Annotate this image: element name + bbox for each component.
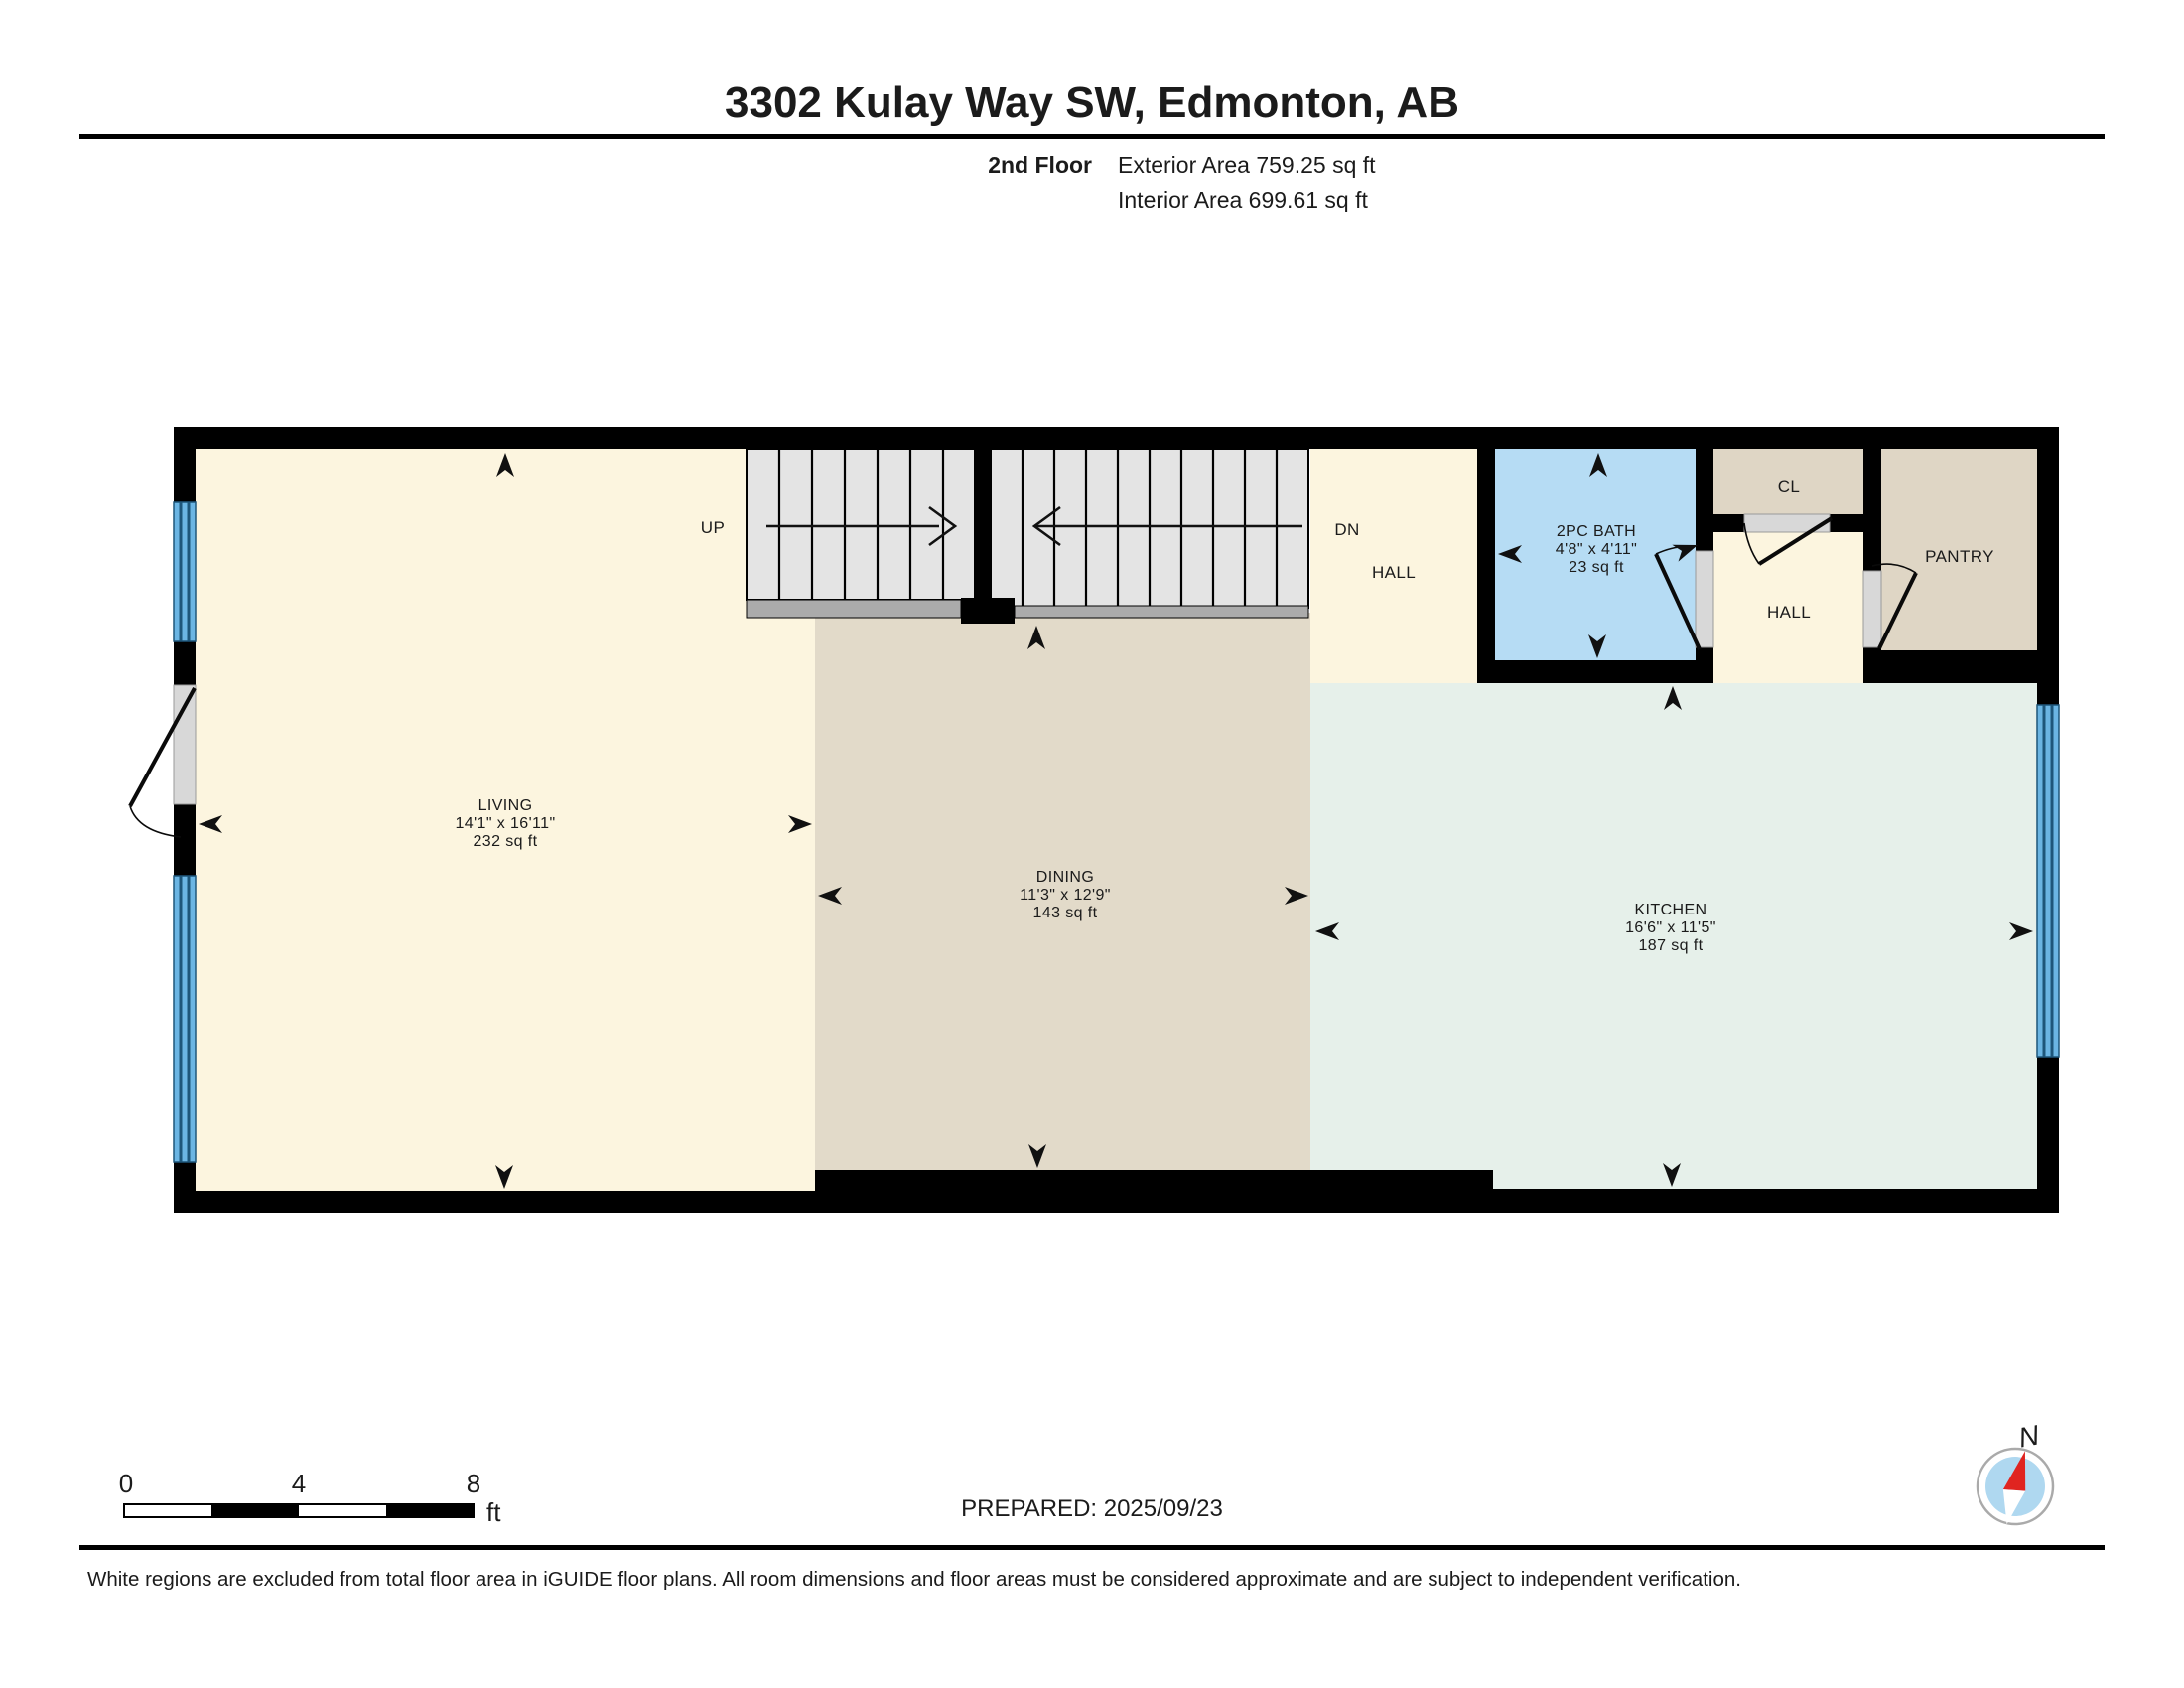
dining-name: DINING (1036, 869, 1094, 886)
closet-label: CL (1778, 477, 1801, 495)
kitchen-area: 187 sq ft (1639, 937, 1704, 954)
wall-bath-right-upper (1696, 427, 1713, 551)
bath-name: 2PC BATH (1557, 523, 1636, 540)
stair-run-up (747, 449, 975, 600)
living-name: LIVING (478, 797, 533, 814)
floor-plan-page: 3302 Kulay Way SW, Edmonton, AB 2nd Floo… (0, 0, 2184, 1688)
compass: N (1978, 1419, 2053, 1526)
wall-stair-block (961, 598, 1015, 624)
hall-right-label: HALL (1767, 603, 1811, 622)
wall-bottom-right (1493, 1189, 2059, 1213)
kitchen-label: KITCHEN 16'6" x 11'5" 187 sq ft (1625, 902, 1716, 954)
window-living-upper (174, 502, 196, 641)
wall-bottom-left (174, 1191, 815, 1213)
wall-closet-bottom-left (1713, 514, 1744, 532)
wall-top (174, 427, 2059, 449)
stairs-down-label: DN (1334, 520, 1359, 539)
floor-label: 2nd Floor (988, 152, 1092, 178)
wall-bath-bottom (1477, 660, 1713, 683)
wall-closet-bottom-right (1830, 514, 1863, 532)
header-divider (79, 134, 2105, 139)
kitchen-name: KITCHEN (1634, 902, 1706, 918)
living-area: 232 sq ft (474, 833, 538, 850)
wall-pantry-left-upper (1863, 427, 1881, 571)
header: 3302 Kulay Way SW, Edmonton, AB 2nd Floo… (79, 78, 2105, 212)
scale-bar-seg4 (386, 1504, 474, 1517)
dining-area: 143 sq ft (1033, 905, 1098, 921)
stair-landing-up (747, 600, 961, 618)
floor-plan: LIVING 14'1" x 16'11" 232 sq ft DINING 1… (130, 427, 2059, 1213)
living-dims: 14'1" x 16'11" (455, 815, 555, 832)
wall-left-seg3 (174, 804, 196, 876)
scale-bar: 0 4 8 ft (119, 1469, 501, 1527)
scale-label-8: 8 (467, 1469, 480, 1498)
interior-area: Interior Area 699.61 sq ft (1118, 187, 1368, 212)
dining-dims: 11'3" x 12'9" (1020, 887, 1111, 904)
footer: White regions are excluded from total fl… (79, 1545, 2105, 1591)
stairs-up-label: UP (701, 518, 725, 537)
wall-left-seg2 (174, 641, 196, 685)
scale-label-4: 4 (292, 1469, 306, 1498)
wall-stair-divider (975, 427, 991, 613)
window-kitchen (2037, 705, 2059, 1057)
stair-landing-down (1015, 606, 1308, 618)
scale-label-0: 0 (119, 1469, 133, 1498)
hall-upper-label: HALL (1372, 563, 1416, 582)
bath-dims: 4'8" x 4'11" (1556, 541, 1637, 558)
footer-divider (79, 1545, 2105, 1550)
staircase (747, 449, 1308, 618)
exterior-area: Exterior Area 759.25 sq ft (1118, 152, 1376, 178)
wall-bath-right-lower (1696, 647, 1713, 683)
disclaimer-text: White regions are excluded from total fl… (87, 1568, 1741, 1591)
prepared-date: PREPARED: 2025/09/23 (961, 1495, 1223, 1522)
wall-bottom-middle (815, 1170, 1493, 1213)
pantry-label: PANTRY (1925, 547, 1994, 566)
scale-unit: ft (486, 1497, 501, 1527)
page-title: 3302 Kulay Way SW, Edmonton, AB (725, 78, 1459, 127)
kitchen-dims: 16'6" x 11'5" (1625, 919, 1716, 936)
window-living-lower (174, 876, 196, 1162)
wall-left-seg1 (174, 427, 196, 502)
bath-area: 23 sq ft (1569, 559, 1624, 576)
wall-pantry-bottom (1863, 650, 2059, 683)
wall-hall-bath (1477, 427, 1495, 683)
scale-bar-seg2 (211, 1504, 299, 1517)
